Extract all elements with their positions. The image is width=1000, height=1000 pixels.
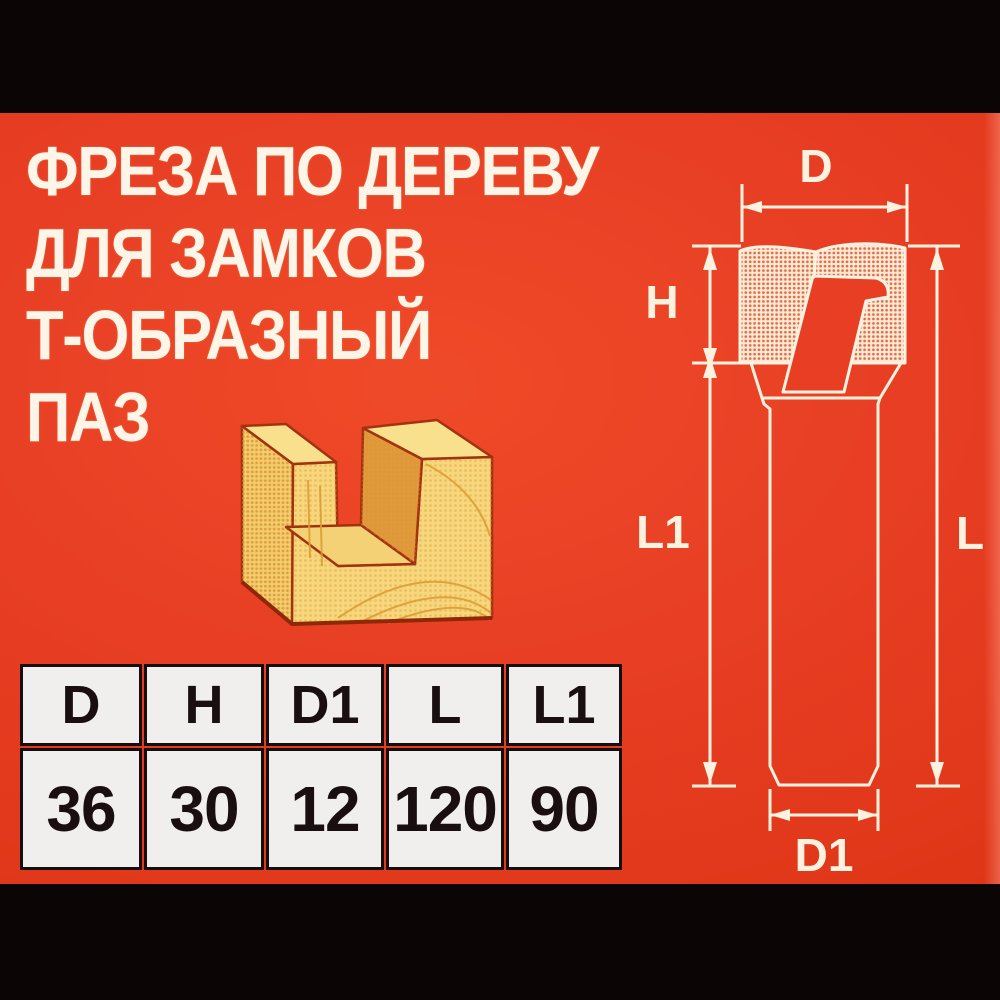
bottom-letterbox-bar <box>0 884 1000 1000</box>
spec-table-value-d: 36 <box>20 748 142 870</box>
spec-table-value-l1: 90 <box>506 748 622 870</box>
dimension-h <box>692 246 741 786</box>
spec-table-header-h: H <box>144 664 264 746</box>
dim-label-l1: L1 <box>636 506 690 558</box>
title-line-1: ФРЕЗА ПО ДЕРЕВУ <box>26 130 598 212</box>
dim-label-d1: D1 <box>795 829 854 881</box>
router-bit-outline <box>740 244 905 785</box>
wood-block-illustration <box>228 408 500 638</box>
wood-block-faces <box>242 420 492 624</box>
spec-table-value-l: 120 <box>386 748 504 870</box>
dimension-d <box>742 184 907 242</box>
dim-label-l: L <box>956 507 984 559</box>
bit-shank <box>762 398 880 785</box>
spec-table: D H D1 L L1 36 30 12 120 90 <box>20 664 622 870</box>
dim-label-h: H <box>645 276 678 328</box>
dimension-d1 <box>770 789 878 831</box>
router-bit-diagram: D H L1 L D1 <box>600 118 1000 884</box>
spec-table-value-h: 30 <box>144 748 264 870</box>
dimension-l1 <box>692 762 736 786</box>
spec-table-header-l1: L1 <box>506 664 622 746</box>
bit-flute-split-line <box>814 252 816 277</box>
spec-table-header-d: D <box>20 664 142 746</box>
dimension-l <box>908 246 960 786</box>
spec-table-header-l: L <box>386 664 504 746</box>
spec-table-header-d1: D1 <box>266 664 384 746</box>
title-line-2: ДЛЯ ЗАМКОВ <box>26 212 598 294</box>
title-line-3: Т-ОБРАЗНЫЙ <box>26 294 598 376</box>
dim-label-d: D <box>799 140 832 192</box>
spec-table-value-d1: 12 <box>266 748 384 870</box>
top-letterbox-bar <box>0 0 1000 113</box>
